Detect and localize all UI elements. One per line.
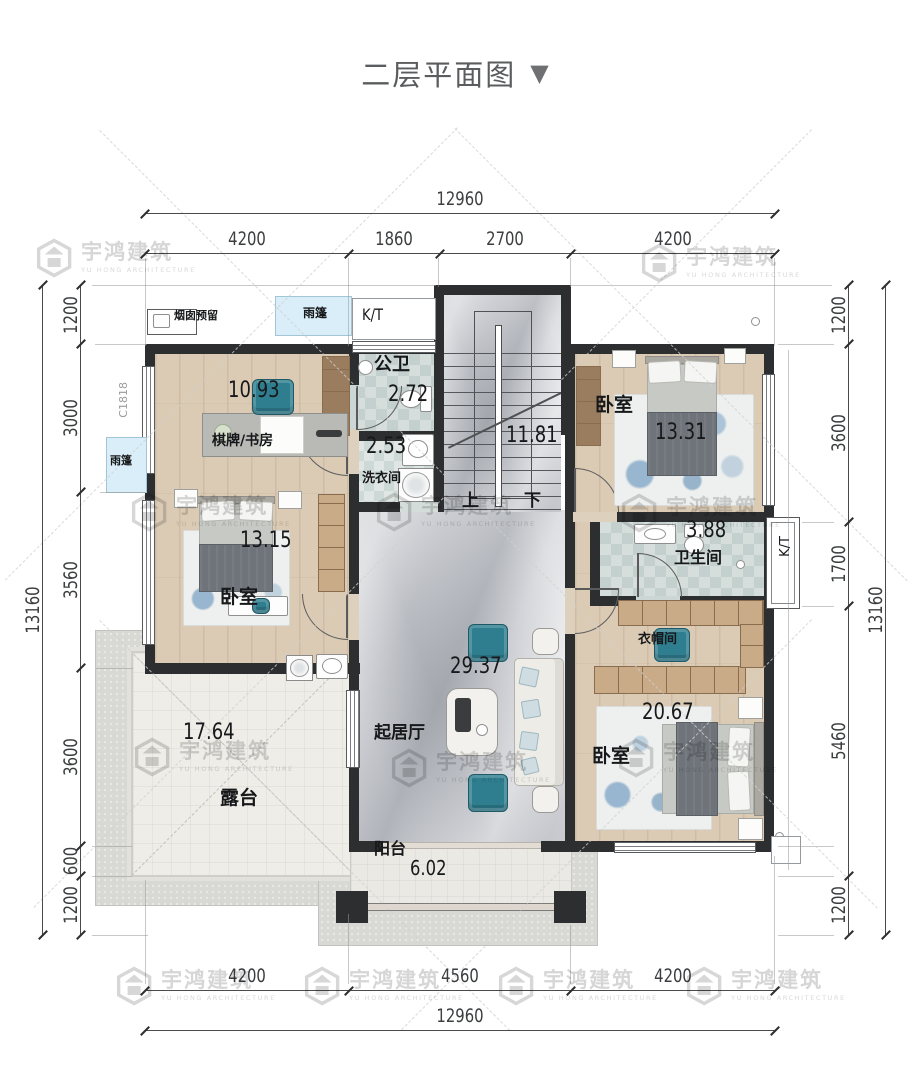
bed-blanket bbox=[676, 722, 718, 816]
watermark-text: 宇鸿建筑YU HONG ARCHITECTURE bbox=[81, 242, 196, 274]
watermark-text: 宇鸿建筑YU HONG ARCHITECTURE bbox=[543, 970, 658, 1002]
extension-line bbox=[778, 876, 834, 877]
watermark-text: 宇鸿建筑YU HONG ARCHITECTURE bbox=[731, 970, 846, 1002]
dim-value: 1700 bbox=[828, 545, 850, 583]
sink-basin bbox=[322, 658, 342, 674]
nightstand bbox=[174, 489, 198, 508]
room-area-living: 29.37 bbox=[450, 654, 502, 679]
nightstand bbox=[612, 350, 636, 368]
extension-line bbox=[438, 258, 439, 287]
dim-left-segments: 12003000356036006001200 bbox=[80, 285, 81, 935]
room-label-laundry: 洗衣间 bbox=[362, 472, 401, 487]
door-leaf bbox=[346, 594, 348, 638]
annotation-canopy-left: 雨篷 bbox=[110, 455, 132, 468]
dim-value: 13160 bbox=[22, 586, 44, 633]
room-area-balcony: 6.02 bbox=[410, 857, 447, 880]
wardrobe bbox=[740, 624, 764, 668]
washing-machine bbox=[398, 468, 434, 502]
dim-bottom-overall: 12960 bbox=[145, 1030, 775, 1031]
window bbox=[352, 341, 436, 353]
armchair bbox=[468, 774, 508, 812]
brand-logo-icon bbox=[496, 966, 536, 1006]
dim-value: 1860 bbox=[376, 228, 414, 250]
watermark: 宇鸿建筑YU HONG ARCHITECTURE bbox=[302, 966, 464, 1006]
window bbox=[614, 842, 756, 853]
basin bbox=[358, 360, 373, 375]
drawing-title: 二层平面图 ▼ bbox=[0, 52, 910, 94]
dim-right-segments: 12003600170054601200 bbox=[848, 285, 849, 935]
extension-line bbox=[92, 285, 436, 286]
stairwell bbox=[444, 295, 561, 512]
stair-up-label: 上 bbox=[462, 492, 479, 512]
room-label-bedroom-w: 卧室 bbox=[220, 587, 258, 609]
table-tray bbox=[455, 698, 471, 732]
stair-void-outline bbox=[474, 311, 532, 499]
room-area-guest-bath: 2.72 bbox=[388, 382, 428, 407]
wardrobe bbox=[594, 666, 746, 694]
room-area-bedroom-w: 13.15 bbox=[240, 528, 292, 553]
pillow bbox=[200, 500, 235, 522]
door-leaf bbox=[574, 468, 576, 512]
stair-handrail bbox=[495, 325, 502, 507]
eaves-box bbox=[771, 836, 801, 864]
dim-top-overall: 12960 bbox=[145, 213, 775, 214]
bay-window bbox=[766, 517, 800, 609]
annotation-kt-right: K/T bbox=[779, 536, 794, 557]
extension-line bbox=[145, 258, 146, 346]
dim-value: 12960 bbox=[436, 1005, 483, 1027]
door-leaf bbox=[637, 553, 639, 597]
dim-top-segments: 4200186027004200 bbox=[145, 253, 775, 254]
extension-line bbox=[92, 846, 132, 847]
extension-line bbox=[92, 876, 132, 877]
annotation-window-code: C1818 bbox=[118, 382, 131, 418]
watermark: 宇鸿建筑YU HONG ARCHITECTURE bbox=[684, 966, 846, 1006]
dim-value: 1200 bbox=[60, 296, 82, 334]
extension-line bbox=[145, 880, 146, 984]
room-label-living: 起居厅 bbox=[374, 724, 425, 744]
eaves-line bbox=[788, 350, 789, 870]
dim-value: 2700 bbox=[486, 228, 524, 250]
door-leaf bbox=[575, 588, 619, 590]
terrace-door-window bbox=[346, 690, 360, 768]
extension-line bbox=[348, 914, 349, 984]
room-label-bedroom-ne: 卧室 bbox=[595, 395, 633, 417]
room-area-laundry: 2.53 bbox=[366, 434, 406, 459]
dim-value: 4560 bbox=[441, 965, 479, 987]
dim-value: 4200 bbox=[228, 228, 266, 250]
extension-line bbox=[802, 522, 834, 523]
room-area-bedroom-se: 20.67 bbox=[642, 700, 694, 725]
dim-value: 3560 bbox=[60, 561, 82, 599]
extension-line bbox=[92, 935, 148, 936]
annotation-chimney: 烟囱预留 bbox=[174, 310, 218, 323]
floor-drain bbox=[736, 560, 745, 569]
extension-line bbox=[570, 925, 571, 984]
door-gap bbox=[349, 426, 359, 474]
room-label-cloakroom: 衣帽间 bbox=[638, 633, 677, 648]
dim-value: 1200 bbox=[828, 296, 850, 334]
door-gap bbox=[349, 594, 359, 640]
stair-down-label: 下 bbox=[524, 492, 541, 512]
room-area-terrace: 17.64 bbox=[183, 720, 235, 745]
room-area-bedroom-ne: 13.31 bbox=[655, 420, 707, 445]
downpipe bbox=[751, 317, 760, 326]
balcony-column bbox=[554, 891, 586, 923]
dim-value: 12960 bbox=[436, 188, 483, 210]
sink-basin bbox=[644, 528, 666, 540]
sofa-pillow bbox=[521, 699, 542, 720]
table-deco bbox=[476, 724, 488, 736]
room-area-bathroom: 3.88 bbox=[686, 518, 726, 543]
sofa-pillow bbox=[519, 731, 539, 751]
dim-value: 600 bbox=[60, 847, 82, 875]
annotation-kt-top: K/T bbox=[362, 306, 383, 324]
dim-value: 13160 bbox=[865, 586, 887, 633]
pillow bbox=[647, 360, 681, 384]
dim-left-overall: 13160 bbox=[42, 285, 43, 935]
room-label-bathroom: 卫生间 bbox=[674, 549, 722, 567]
room-area-study: 10.93 bbox=[228, 378, 280, 403]
wardrobe bbox=[618, 600, 764, 626]
wardrobe bbox=[318, 494, 345, 592]
dim-value: 4200 bbox=[228, 965, 266, 987]
dim-bottom-segments: 420045604200 bbox=[145, 990, 775, 991]
brand-logo-icon bbox=[34, 238, 74, 278]
extension-line bbox=[778, 846, 834, 847]
nightstand bbox=[738, 697, 763, 719]
pillow bbox=[238, 500, 273, 522]
door-leaf bbox=[356, 386, 358, 430]
dim-value: 1200 bbox=[60, 886, 82, 924]
washing-machine bbox=[286, 655, 313, 681]
side-table bbox=[532, 628, 559, 655]
nightstand bbox=[278, 491, 302, 509]
sofa-pillow bbox=[518, 666, 539, 687]
title-text: 二层平面图 bbox=[361, 52, 516, 94]
desk-item bbox=[316, 430, 342, 437]
chimney-inner bbox=[153, 314, 170, 328]
brand-logo-icon bbox=[302, 966, 342, 1006]
extension-line bbox=[570, 258, 571, 287]
room-label-balcony: 阳台 bbox=[374, 840, 406, 858]
floorplan-sheet: 二层平面图 ▼ 宇鸿建筑YU HONG ARCHITECTURE宇鸿建筑YU H… bbox=[0, 0, 910, 1079]
extension-line bbox=[774, 856, 775, 984]
room-label-bedroom-se: 卧室 bbox=[592, 746, 630, 768]
wall-segment bbox=[541, 841, 575, 852]
extension-line bbox=[95, 344, 147, 345]
watermark: 宇鸿建筑YU HONG ARCHITECTURE bbox=[496, 966, 658, 1006]
wall-segment bbox=[434, 285, 571, 295]
bed-headboard bbox=[754, 722, 764, 816]
dim-value: 3600 bbox=[828, 414, 850, 452]
nightstand bbox=[738, 818, 763, 840]
annotation-canopy-top: 雨篷 bbox=[303, 307, 327, 321]
dim-value: 3000 bbox=[60, 399, 82, 437]
extension-line bbox=[100, 492, 145, 493]
dim-value: 4200 bbox=[654, 965, 692, 987]
window bbox=[142, 500, 155, 645]
room-label-study: 棋牌/书房 bbox=[212, 433, 273, 449]
extension-line bbox=[96, 668, 133, 669]
coffee-table bbox=[446, 688, 498, 756]
room-label-terrace: 露台 bbox=[220, 788, 258, 810]
dim-value: 3600 bbox=[60, 738, 82, 776]
dim-value: 1200 bbox=[828, 886, 850, 924]
side-table bbox=[532, 786, 559, 813]
window bbox=[762, 374, 775, 506]
extension-line bbox=[348, 258, 349, 346]
extension-line bbox=[774, 258, 775, 346]
door-gap bbox=[565, 588, 575, 634]
room-area-stairwell: 11.81 bbox=[506, 423, 558, 448]
dim-value: 4200 bbox=[654, 228, 692, 250]
extension-line bbox=[778, 344, 834, 345]
extension-line bbox=[778, 935, 834, 936]
dim-value: 5460 bbox=[828, 722, 850, 760]
dim-right-overall: 13160 bbox=[885, 285, 886, 935]
extension-line bbox=[802, 606, 834, 607]
watermark-text: 宇鸿建筑YU HONG ARCHITECTURE bbox=[686, 247, 801, 279]
nightstand bbox=[724, 348, 746, 364]
watermark: 宇鸿建筑YU HONG ARCHITECTURE bbox=[34, 238, 196, 278]
balcony-column bbox=[336, 891, 368, 923]
door-gap bbox=[573, 512, 617, 522]
collapse-triangle-icon: ▼ bbox=[530, 61, 548, 85]
room-label-guest-bath: 公卫 bbox=[374, 355, 410, 376]
